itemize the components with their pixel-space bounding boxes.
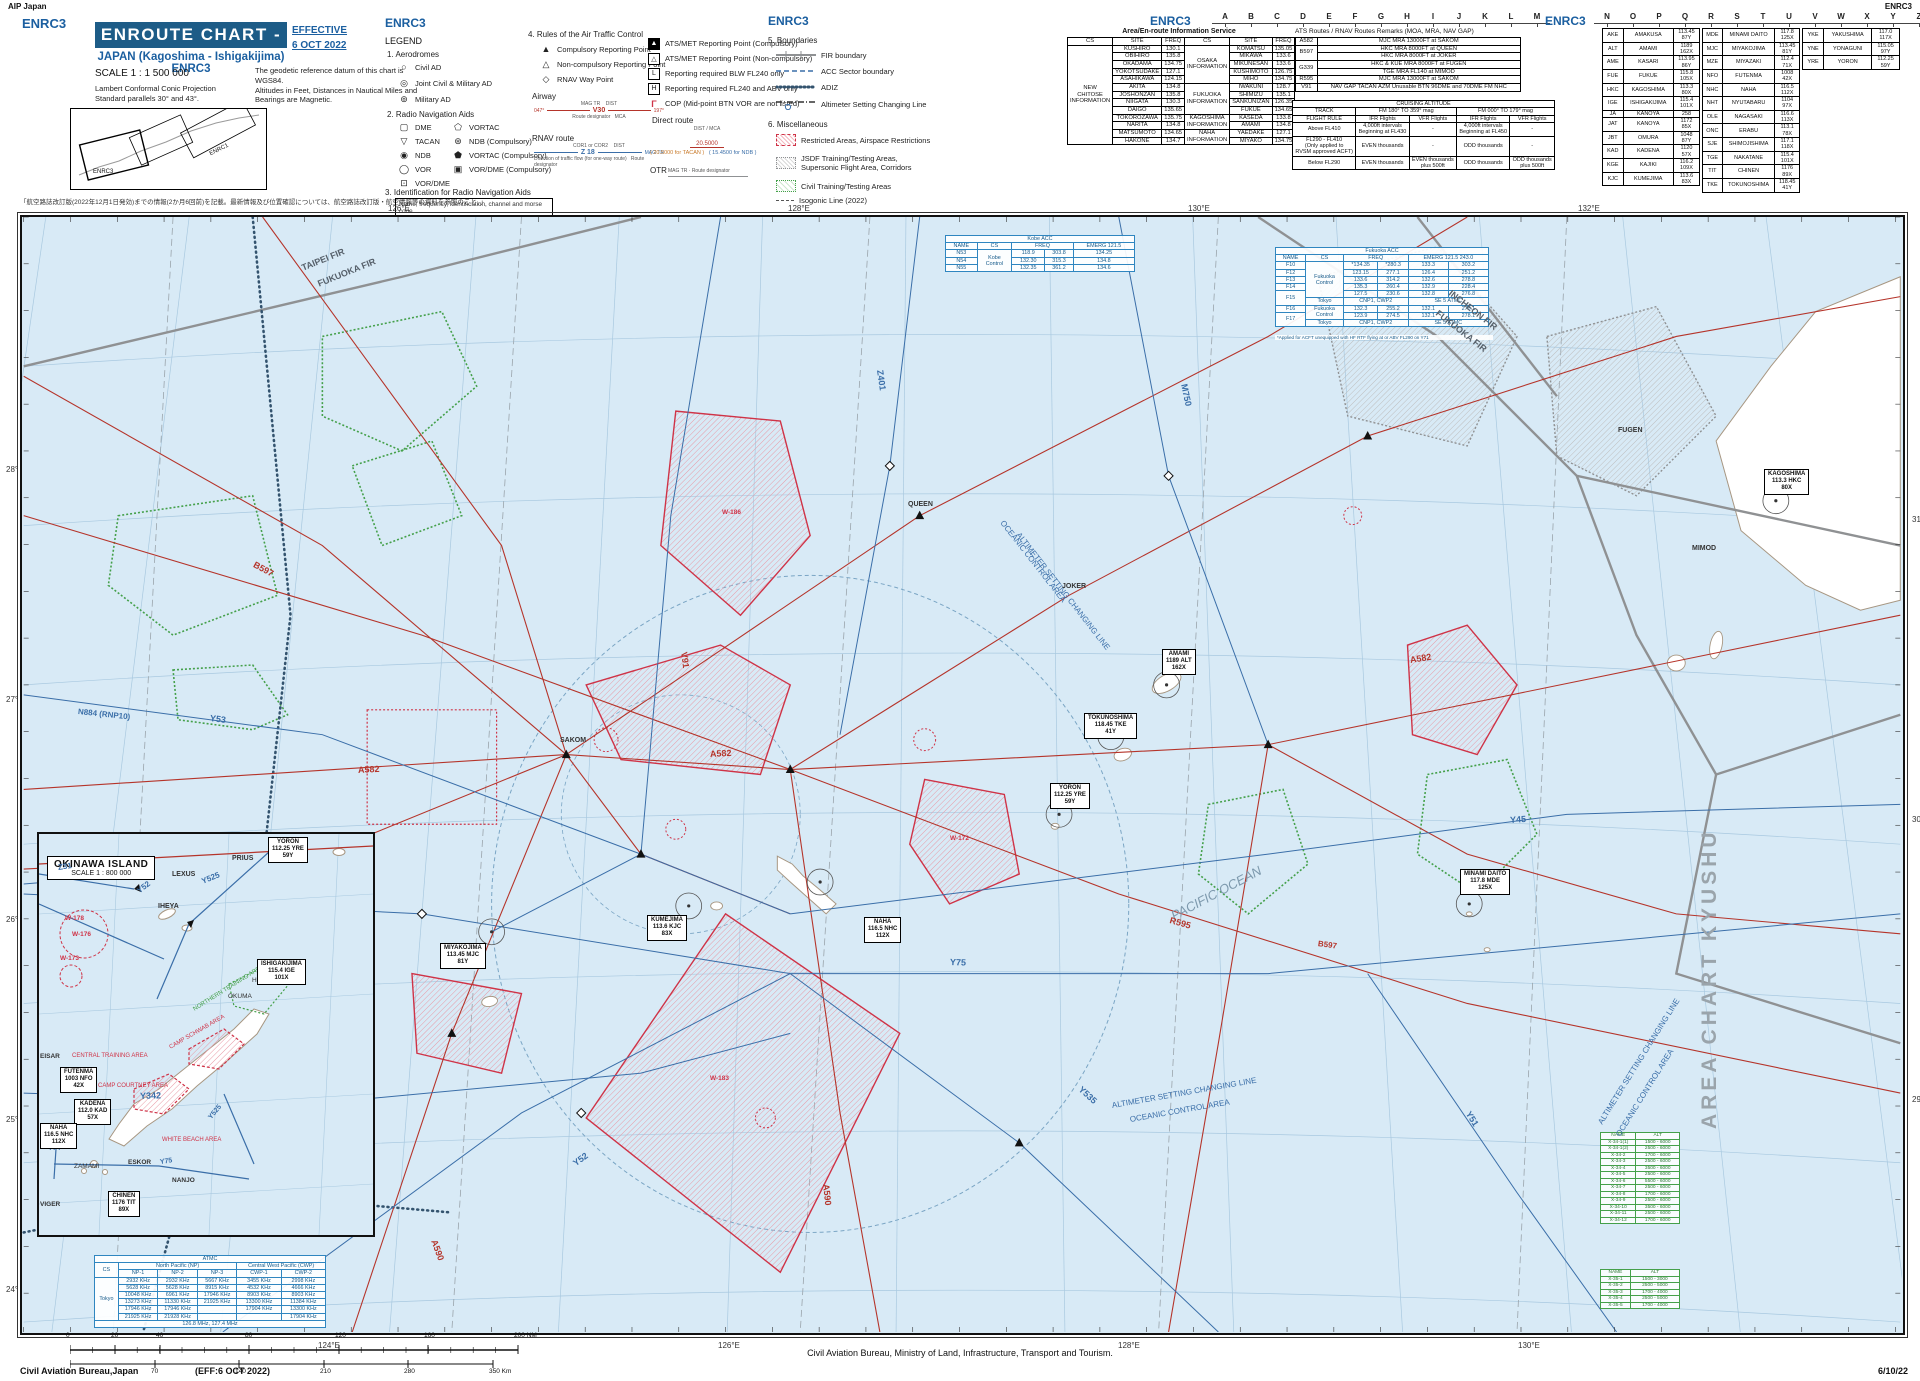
grid-letter: B — [1238, 12, 1264, 24]
table-cell: EVEN thousands plus 500ft — [1409, 156, 1456, 170]
atmc-table: ATMCCSNorth Pacific (NP)Central West Pac… — [94, 1255, 326, 1328]
table-cell: 132.35 — [1012, 264, 1045, 271]
table-cell: Fukuoka Control — [1306, 262, 1344, 298]
page-header-right: ENRC3 — [1885, 2, 1912, 11]
table-cell: EMERG 121.5 243.0 — [1408, 255, 1488, 262]
table-cell: 113.45 87Y — [1673, 29, 1699, 43]
table-cell: 2932 KHz — [118, 1277, 158, 1284]
ats-table-title: ATS Routes / RNAV Routes Remarks (MOA, M… — [1295, 28, 1521, 35]
table-cell: CNP1, CWP2 — [1343, 298, 1408, 305]
parallels-line: Standard parallels 30° and 43°. — [95, 94, 216, 104]
table-cell: 21925 KHz — [118, 1313, 158, 1320]
table-cell: JAT — [1603, 118, 1624, 132]
navaid-table-3: YKEYAKUSHIMA117.0 117XYNEYONAGUNI115.05 … — [1802, 28, 1900, 70]
ndb-variant: ( 15.4500 for NDB ) — [709, 150, 757, 156]
legend-label: NDB (Compulsory) — [469, 137, 532, 146]
table-cell: 21928 KHz — [158, 1313, 198, 1320]
table-cell: AMAMI — [1623, 42, 1673, 56]
ndb-compulsory--icon: ⊛ — [452, 136, 464, 147]
restricted-area-icon — [776, 134, 796, 146]
table-cell: 5628 KHz — [118, 1284, 158, 1291]
rules-label: Compulsory Reporting Point — [557, 45, 651, 54]
table-cell: 13300 KHz — [237, 1299, 281, 1306]
projection-note: Lambert Conformal Conic Projection Stand… — [95, 84, 216, 104]
table-cell: 255.2 — [1378, 305, 1408, 312]
table-cell: 115.8 105X — [1673, 69, 1699, 83]
table-cell: MIKUNESAN — [1230, 60, 1272, 68]
table-cell: 8915 KHz — [197, 1284, 237, 1291]
misc-label: Restricted Areas, Airspace Restrictions — [801, 136, 930, 145]
table-cell: KASEDA — [1230, 114, 1272, 122]
table-cell: YOKOTSUDAKE — [1113, 68, 1162, 76]
legend-radio-title: 2. Radio Navigation Aids — [387, 110, 474, 119]
table-cell: FREQ — [1012, 243, 1074, 250]
table-cell: 127.1 — [1162, 68, 1185, 76]
scale-nm-label: 40 — [156, 1332, 163, 1339]
table-cell: 133.6 — [1272, 53, 1295, 61]
table-cell: 115.4 101X — [1775, 151, 1800, 165]
fukuoka-acc-footnote: *Applied for ACFT unequipped with HF RTF… — [1275, 335, 1493, 340]
index-map: ENRC1 ENRC3 — [70, 108, 267, 190]
grid-letter: D — [1290, 12, 1316, 24]
table-cell: 124.15 — [1162, 76, 1185, 84]
table-cell — [197, 1313, 237, 1320]
table-cell: 113.3 80X — [1673, 83, 1699, 97]
table-cell: FUKUOKA INFORMATION — [1185, 83, 1230, 114]
table-cell: 277.1 — [1378, 269, 1408, 276]
rules-item-noncompulsory: △Non-compulsory Reporting Point — [540, 59, 665, 70]
table-cell: NAHA — [1722, 83, 1775, 97]
table-cell: NHC — [1703, 83, 1723, 97]
map-label: 25° — [6, 1115, 18, 1124]
grid-letter: W — [1828, 12, 1854, 24]
table-cell: AME — [1603, 56, 1624, 70]
scale-nm-label: 0 — [66, 1332, 70, 1339]
ndb-icon: ◉ — [398, 150, 410, 161]
table-cell: IFR Flights — [1356, 115, 1409, 122]
table-cell: X-35-5 — [1601, 1302, 1631, 1309]
vortac-compulsory--icon: ⬟ — [452, 150, 464, 161]
table-cell: 361.2 — [1045, 264, 1073, 271]
table-cell: KUMEJIMA — [1623, 172, 1673, 186]
table-cell: NYUTABARU — [1722, 97, 1775, 111]
scale-nm-label: 80 — [245, 1332, 252, 1339]
legend-item-civil-ad: ○Civil AD — [398, 62, 441, 72]
table-cell: FUKUE — [1230, 106, 1272, 114]
table-cell: MZE — [1703, 56, 1723, 70]
scale-km-label: 210 — [320, 1368, 331, 1375]
scale-nm-label: 200 NM — [514, 1332, 537, 1339]
scale-nm-label: 120 — [335, 1332, 346, 1339]
map-label: 130°E — [1518, 1341, 1540, 1350]
table-cell: 134.25 — [1073, 250, 1134, 257]
table-cell: CRUISING ALTITUDE — [1293, 101, 1555, 108]
footer-ministry: Civil Aviation Bureau, Ministry of Land,… — [660, 1348, 1260, 1358]
table-cell: 4532 KHz — [237, 1284, 281, 1291]
table-cell: OBIHIRO — [1113, 53, 1162, 61]
table-cell: KANOYA — [1623, 118, 1673, 132]
table-cell: SJE — [1703, 138, 1723, 152]
table-cell: 11384 KHz — [281, 1299, 325, 1306]
table-cell: 135.05 — [1272, 45, 1295, 53]
scale-bar: 0204080120160200 NM 070140210280350 Km — [70, 1340, 570, 1379]
table-cell: HKC & KUE MRA 8000FT at FUGEN — [1317, 60, 1520, 68]
table-cell: NAHA INFORMATION — [1185, 129, 1230, 144]
legend-item-military-ad: ⊚Military AD — [398, 94, 451, 105]
units-line1: Altitudes in Feet, Distances in Nautical… — [255, 86, 420, 96]
map-label: 128°E — [788, 204, 810, 213]
boundary-acc: ACC Sector boundary — [776, 66, 894, 76]
airway-label: Airway — [532, 92, 556, 101]
table-cell: 134.75 — [1272, 76, 1295, 84]
table-cell: - — [1510, 122, 1555, 136]
table-cell: TGE MRA FL140 at MIMOD — [1317, 68, 1520, 76]
table-cell: 134.8 — [1162, 83, 1185, 91]
table-cell: F17 — [1276, 312, 1306, 326]
table-cell: NEW CHITOSE INFORMATION — [1068, 45, 1113, 145]
legend-title: LEGEND — [385, 36, 422, 46]
table-cell: 17946 KHz — [118, 1306, 158, 1313]
table-cell: 17904 KHz — [237, 1306, 281, 1313]
map-label: 24° — [6, 1285, 18, 1294]
table-cell: 135.75 — [1162, 114, 1185, 122]
legend-label: VOR — [415, 165, 431, 174]
diag-text: MCA — [615, 114, 626, 120]
table-cell: EVEN thousands — [1356, 136, 1409, 156]
table-cell: ERABU — [1722, 124, 1775, 138]
legend-item: ⊡VOR/DME — [398, 178, 450, 188]
table-cell: FREQ — [1343, 255, 1408, 262]
footer-effective: (EFF:6 OCT 2022) — [195, 1366, 270, 1376]
table-cell: 132.3 — [1343, 305, 1378, 312]
rules-item-compulsory: ▲Compulsory Reporting Point — [540, 44, 651, 54]
page-header-left: AIP Japan — [8, 2, 47, 11]
table-cell: 132.6 — [1408, 276, 1448, 283]
legend-label: Reporting required BLW FL240 only — [665, 69, 784, 78]
rnav-label: RNAV route — [532, 134, 574, 143]
grid-letter: F — [1342, 12, 1368, 24]
table-cell: MIYAKO — [1230, 137, 1272, 145]
table-cell: NIIGATA — [1113, 99, 1162, 107]
table-cell: SE 5 ATMC — [1408, 298, 1488, 305]
table-cell: KAGOSHIMA INFORMATION — [1185, 114, 1230, 129]
table-cell: FM 180° TO 359° mag — [1356, 108, 1457, 115]
legend-item: ▽TACAN — [398, 136, 450, 146]
table-cell: FUTENMA — [1722, 69, 1775, 83]
table-cell: YKE — [1803, 29, 1824, 43]
table-cell: SE 5 ATMC — [1408, 320, 1488, 327]
airway-diagram: MAG TR DIST 047° V30 197° Route designat… — [534, 101, 664, 120]
ats-met-reporting-point-non--icon: △ — [648, 53, 660, 65]
table-cell: TIT — [1703, 165, 1723, 179]
map-label: 29° — [1912, 1095, 1920, 1104]
table-cell: FLIGHT RULE — [1293, 115, 1356, 122]
map-label: 31° — [1912, 515, 1920, 524]
legend-label: Military AD — [415, 95, 451, 104]
table-cell: 127.5 — [1343, 291, 1378, 298]
table-cell: FUE — [1603, 69, 1624, 83]
table-cell: MIYAKOJIMA — [1722, 42, 1775, 56]
vor-icon: ◯ — [398, 164, 410, 175]
table-cell: 113.45 81Y — [1775, 42, 1800, 56]
table-cell: - — [1510, 136, 1555, 156]
map-label: 28° — [6, 465, 18, 474]
table-cell: 132.1 — [1408, 312, 1448, 319]
table-cell: 130.1 — [1162, 45, 1185, 53]
table-cell: 123.15 — [1343, 269, 1378, 276]
boundary-fir: FIR boundary — [776, 50, 866, 60]
grid-letter: C — [1264, 12, 1290, 24]
rules-title: 4. Rules of the Air Traffic Control — [528, 30, 643, 39]
legend-item: ⬠VORTAC — [452, 122, 551, 132]
projection-line: Lambert Conformal Conic Projection — [95, 84, 216, 94]
legend-item: ▢DME — [398, 122, 450, 132]
table-cell: CNP1, CWP2 — [1343, 320, 1408, 327]
table-cell: - — [1409, 136, 1456, 156]
table-cell: JOSHONZAN — [1113, 91, 1162, 99]
table-cell: NP-2 — [158, 1270, 198, 1277]
table-cell: YAEDAKE — [1230, 129, 1272, 137]
table-cell: 21925 KHz — [197, 1299, 237, 1306]
table-cell: 126.4 — [1408, 269, 1448, 276]
table-cell: 8903 KHz — [281, 1292, 325, 1299]
inset-title-box: OKINAWA ISLAND SCALE 1 : 800 000 — [47, 856, 155, 880]
grid-letter: K — [1472, 12, 1498, 24]
table-cell: MJC — [1703, 42, 1723, 56]
military-ad-icon: ⊚ — [398, 94, 410, 105]
table-cell: 230.6 — [1378, 291, 1408, 298]
diag-text: MAG TR — [668, 168, 687, 174]
table-cell: TRACK — [1293, 108, 1356, 115]
table-cell: 126.8 MHz, 127.4 MHz — [95, 1320, 326, 1327]
table-cell: CWP-1 — [237, 1270, 281, 1277]
boundary-label: ACC Sector boundary — [821, 67, 894, 76]
table-cell: FM 000° TO 179° mag — [1457, 108, 1555, 115]
table-cell: OMURA — [1623, 131, 1673, 145]
table-cell: 4666 KHz — [281, 1284, 325, 1291]
misc-isogonic: Isogonic Line (2022) — [776, 196, 966, 205]
diag-text: DIST / MCA — [662, 126, 752, 132]
okinawa-inset: OKINAWA ISLAND SCALE 1 : 800 000 — [37, 832, 375, 1237]
table-cell: 5628 KHz — [158, 1284, 198, 1291]
table-cell: MIYAZAKI — [1722, 56, 1775, 70]
table-cell: 134.6 — [1073, 264, 1134, 271]
table-cell: 6961 KHz — [158, 1292, 198, 1299]
units-line2: Bearings are Magnetic. — [255, 95, 420, 105]
table-cell: AMAMI — [1230, 122, 1272, 130]
table-cell: JBT — [1603, 131, 1624, 145]
rnav-route-sample: Z 18 — [581, 149, 595, 156]
table-cell: KADENA — [1623, 145, 1673, 159]
table-cell: 115.4 101X — [1673, 97, 1699, 111]
table-cell: F15 — [1276, 291, 1306, 305]
table-cell: VFR Flights — [1510, 115, 1555, 122]
table-cell: 13300 KHz — [281, 1306, 325, 1313]
table-cell: 8903 KHz — [237, 1292, 281, 1299]
table-cell: ALT — [1603, 42, 1624, 56]
tacan-icon: ▽ — [398, 136, 410, 147]
table-cell: 1048 87Y — [1673, 131, 1699, 145]
vortac-icon: ⬠ — [452, 122, 464, 133]
area-info-table: CSSITEFREQCSSITEFREQNEW CHITOSE INFORMAT… — [1067, 37, 1295, 145]
table-cell: CS — [977, 243, 1011, 250]
misc-label: JSDF Training/Testing Areas, Supersonic … — [801, 154, 911, 172]
table-cell: 315.3 — [1045, 257, 1073, 264]
table-cell: TOKOROZAWA — [1113, 114, 1162, 122]
table-cell: NP-1 — [118, 1270, 158, 1277]
map-label: 130°E — [1188, 204, 1210, 213]
grid-letter: I — [1420, 12, 1446, 24]
table-cell: MJC MRA 13000FT at SAKOM — [1317, 76, 1520, 84]
table-cell: North Pacific (NP) — [118, 1263, 237, 1270]
table-cell: Kobe Control — [977, 250, 1011, 272]
table-cell: 133.3 — [1408, 262, 1448, 269]
boundary-label: Altimeter Setting Changing Line — [821, 100, 926, 109]
table-cell: 1104 97X — [1775, 97, 1800, 111]
table-cell: YONAGUNI — [1824, 42, 1872, 56]
inset-title: OKINAWA ISLAND — [54, 859, 148, 870]
table-cell: 118.9 — [1012, 250, 1045, 257]
table-cell: NFO — [1703, 69, 1723, 83]
tacan-variant: ( 20.5000 for TACAN ) — [650, 150, 704, 156]
table-cell: 134.75 — [1162, 60, 1185, 68]
table-cell: TGE — [1703, 151, 1723, 165]
table-cell: KGE — [1603, 158, 1624, 172]
table-cell: 128.7 — [1272, 83, 1295, 91]
table-cell: 112.25 59Y — [1872, 56, 1900, 70]
table-cell: 1172 85X — [1673, 118, 1699, 132]
noncompulsory-point-icon: △ — [540, 59, 552, 70]
boundaries-code: ENRC3 — [768, 14, 809, 28]
diag-text: Route designator — [572, 114, 610, 120]
table-cell: NAME — [1276, 255, 1306, 262]
training-area-table-1: NAMEALTX-34-1(1)1500 - 6000X-34-1(2)2500… — [1600, 1132, 1680, 1224]
legend-item-joint-ad: ◎Joint Civil & Military AD — [398, 78, 492, 89]
table-cell: R595 — [1296, 76, 1318, 84]
table-cell: KUSHIRO — [1113, 45, 1162, 53]
cruising-altitude-table: CRUISING ALTITUDETRACKFM 180° TO 359° ma… — [1292, 100, 1555, 170]
table-cell: OSAKA INFORMATION — [1185, 45, 1230, 83]
table-cell: 116.5 112X — [1775, 83, 1800, 97]
legend-label: Joint Civil & Military AD — [415, 79, 492, 88]
fukuoka-acc-table: Fukuoka ACCNAMECSFREQEMERG 121.5 243.0F1… — [1275, 247, 1489, 327]
table-cell: SANKUNIZAN — [1230, 99, 1272, 107]
table-cell: 133.6 — [1343, 276, 1378, 283]
table-cell: 133.6 — [1272, 60, 1295, 68]
table-cell: OLE — [1703, 110, 1723, 124]
effective-label: EFFECTIVE — [292, 23, 347, 38]
footer-date: 6/10/22 — [1878, 1366, 1908, 1376]
table-cell: A582 — [1296, 38, 1318, 46]
table-cell: FL290 - FL410 (Only applied to RVSM appr… — [1293, 136, 1356, 156]
table-cell: 278.1 — [1448, 312, 1488, 319]
table-cell: 113.1 78X — [1775, 124, 1800, 138]
table-cell: IFR Flights — [1457, 115, 1510, 122]
table-cell: 1008 42X — [1775, 69, 1800, 83]
info-table-title: Area/En-route Information Service — [1067, 28, 1291, 35]
boundary-altimeter: Altimeter Setting Changing Line — [776, 98, 926, 110]
misc-title: 6. Miscellaneous — [768, 120, 828, 129]
table-cell: 126.75 — [1272, 68, 1295, 76]
legend-code: ENRC3 — [385, 16, 426, 30]
vor-dme-icon: ⊡ — [398, 178, 410, 189]
misc-label: Isogonic Line (2022) — [799, 196, 867, 205]
table-cell: MIHO — [1230, 76, 1272, 84]
adiz-line-icon — [776, 82, 816, 92]
datum-note: The geodetic reference datum of this cha… — [255, 66, 420, 105]
grid-ruler-a-m: ABCDEFGHIJKLM — [1212, 12, 1550, 24]
table-cell: G339 — [1296, 60, 1318, 75]
table-cell: Tokyo — [1306, 298, 1344, 305]
table-cell: Fukuoka Control — [1306, 305, 1344, 319]
table-cell: EMERG 121.5 — [1073, 243, 1134, 250]
table-cell: 303.8 — [1045, 250, 1073, 257]
index-map-sketch — [71, 109, 266, 189]
ruler-code-right: ENRC3 — [1545, 14, 1586, 28]
table-cell: 4,000ft intervals Beginning at FL450 — [1457, 122, 1510, 136]
inset-scale: SCALE 1 : 800 000 — [54, 870, 148, 877]
table-cell: ODD thousands — [1457, 136, 1510, 156]
table-cell: - — [1409, 122, 1456, 136]
diag-text: DIST — [606, 101, 617, 107]
table-cell: HKC MRA 8000FT at JOKER — [1317, 53, 1520, 61]
table-cell: 134.8 — [1162, 122, 1185, 130]
table-cell: *280.3 — [1378, 262, 1408, 269]
direct-route-diagram: DIST / MCA 20.5000 — [662, 126, 752, 150]
scale-km-label: 70 — [151, 1368, 158, 1375]
table-cell: CS — [95, 1263, 119, 1277]
table-cell: Central West Pacific (CWP) — [237, 1263, 326, 1270]
table-cell: CWP-2 — [281, 1270, 325, 1277]
table-cell: 132.9 — [1408, 284, 1448, 291]
table-cell: NAV GAP TACAN AZM Unusable BTN 96DME and… — [1317, 83, 1520, 91]
table-cell: Tokyo — [95, 1277, 119, 1320]
table-cell: 116.2 109X — [1673, 158, 1699, 172]
table-cell: 278.1 — [1448, 305, 1488, 312]
table-cell: SHIMIZU — [1230, 91, 1272, 99]
grid-letter: Y — [1880, 12, 1906, 24]
table-cell: MIKAWA — [1230, 53, 1272, 61]
table-cell: ODD thousands — [1457, 156, 1510, 170]
table-cell: F10 — [1276, 262, 1306, 269]
chart-title: ENROUTE CHART - ICAO — [95, 22, 287, 48]
grid-letter: R — [1698, 12, 1724, 24]
grid-letter: Z — [1906, 12, 1920, 24]
scale-nm-label: 20 — [111, 1332, 118, 1339]
civil-ad-icon: ○ — [398, 62, 410, 72]
table-cell: 115.05 97Y — [1872, 42, 1900, 56]
navaid-table-2: MDEMINAMI DAITO117.8 125XMJCMIYAKOJIMA11… — [1702, 28, 1800, 193]
table-cell: 132.30 — [1012, 257, 1045, 264]
table-cell: 17946 KHz — [158, 1306, 198, 1313]
table-cell: KAD — [1603, 145, 1624, 159]
boundary-label: ADIZ — [821, 83, 838, 92]
table-cell: TKE — [1703, 178, 1723, 192]
table-cell: 113.95 86Y — [1673, 56, 1699, 70]
table-cell: 134.8 — [1073, 257, 1134, 264]
table-cell: 134.65 — [1162, 129, 1185, 137]
dme-icon: ▢ — [398, 122, 410, 133]
table-cell: 228.4 — [1448, 284, 1488, 291]
chart-page: AIP Japan ENRC3 ENRC3 ENROUTE CHART - IC… — [0, 0, 1920, 1381]
table-cell: KJC — [1603, 172, 1624, 186]
legend-label: VORTAC — [469, 123, 500, 132]
table-cell: N55 — [946, 264, 978, 271]
scale-km-label: 350 Km — [489, 1368, 511, 1375]
table-cell: AKITA — [1113, 83, 1162, 91]
table-cell: SHIMOJISHIMA — [1722, 138, 1775, 152]
table-cell: 11330 KHz — [158, 1299, 198, 1306]
